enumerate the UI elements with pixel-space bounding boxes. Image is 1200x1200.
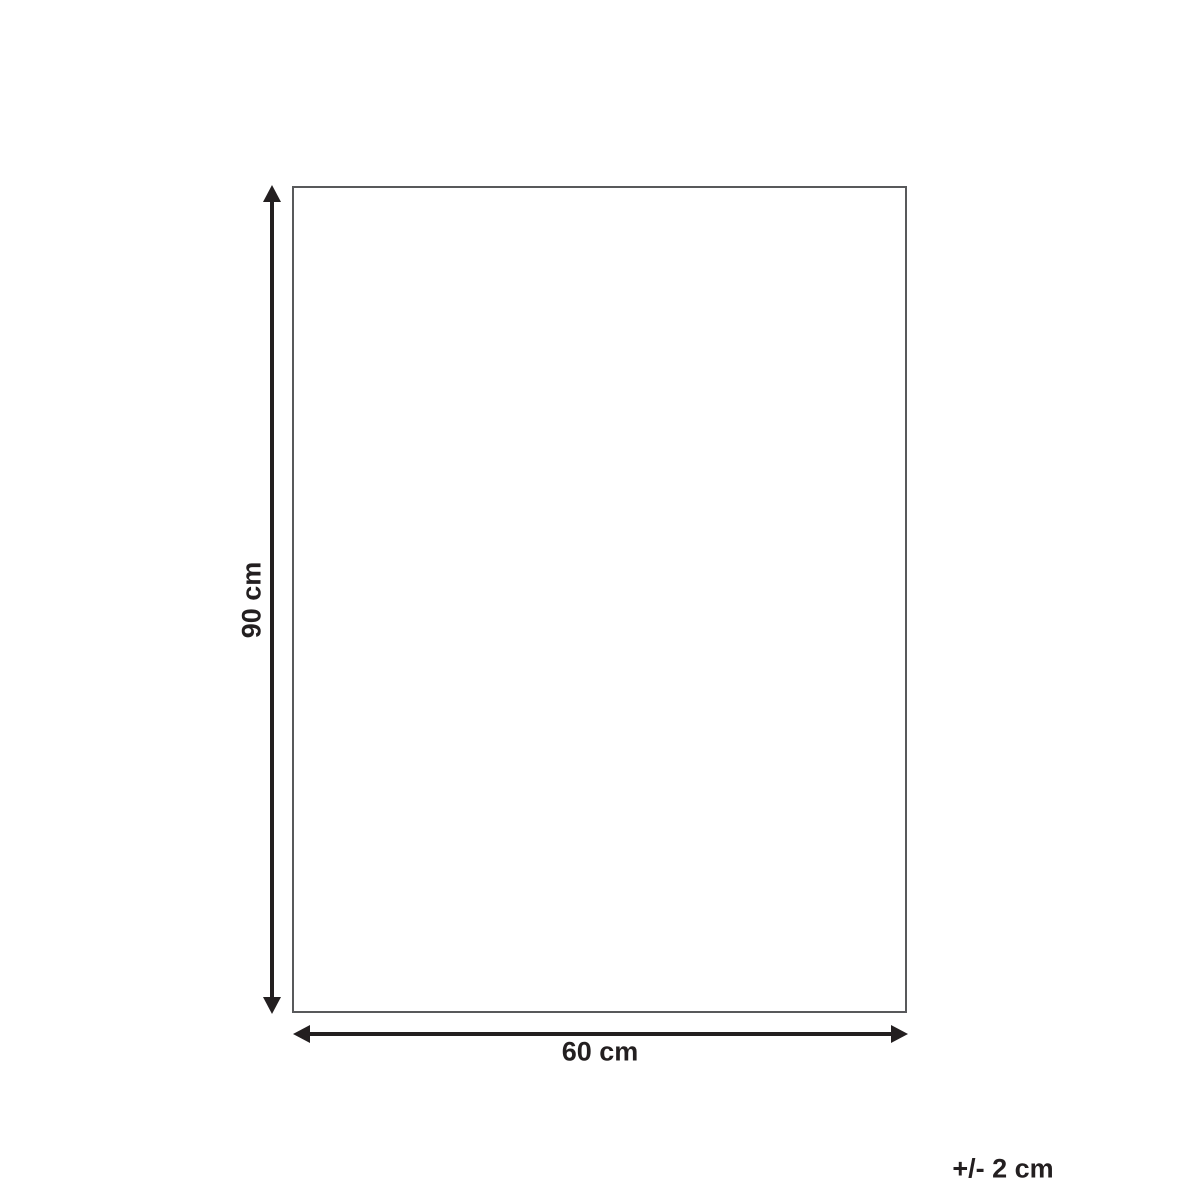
width-dimension-label: 60 cm	[562, 1037, 639, 1068]
arrowhead-down-icon	[263, 997, 281, 1014]
tolerance-label: +/- 2 cm	[952, 1154, 1053, 1185]
arrowhead-left-icon	[293, 1025, 310, 1043]
dimension-diagram: 90 cm 60 cm +/- 2 cm	[0, 0, 1200, 1200]
width-arrow-shaft	[310, 1032, 891, 1036]
product-outline	[292, 186, 907, 1013]
arrowhead-up-icon	[263, 185, 281, 202]
height-arrow-shaft	[270, 202, 274, 997]
height-dimension-label: 90 cm	[237, 562, 268, 639]
arrowhead-right-icon	[891, 1025, 908, 1043]
